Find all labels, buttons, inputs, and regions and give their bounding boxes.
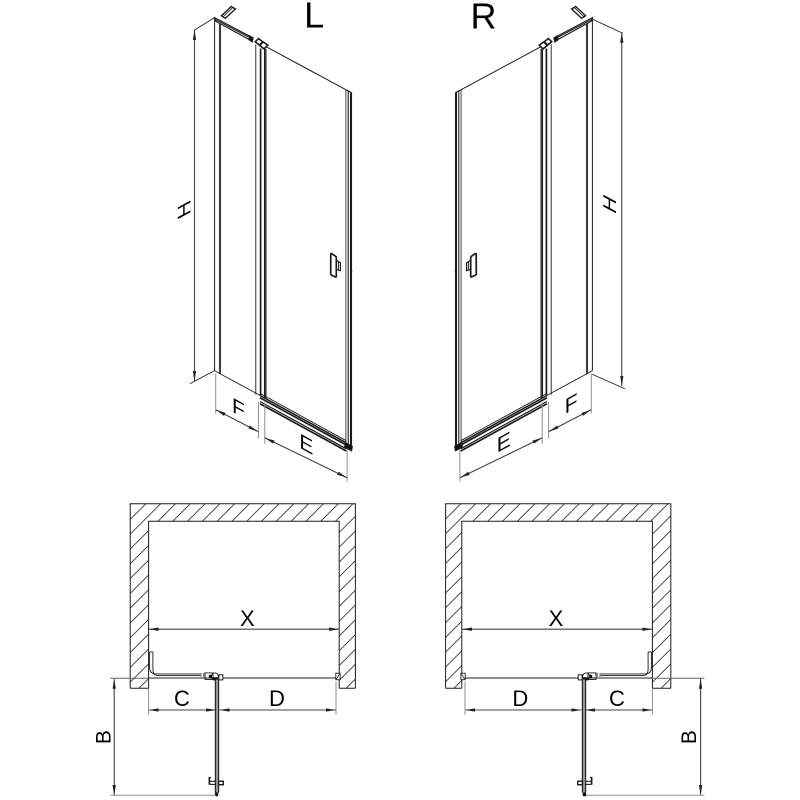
svg-text:D: D (269, 686, 285, 711)
svg-text:R: R (471, 0, 497, 37)
svg-text:X: X (240, 606, 255, 631)
svg-text:D: D (512, 686, 528, 711)
svg-text:B: B (92, 730, 115, 744)
svg-text:X: X (549, 606, 564, 631)
svg-text:C: C (174, 686, 190, 711)
svg-text:B: B (678, 730, 701, 744)
svg-text:L: L (304, 0, 324, 36)
svg-text:C: C (609, 686, 625, 711)
